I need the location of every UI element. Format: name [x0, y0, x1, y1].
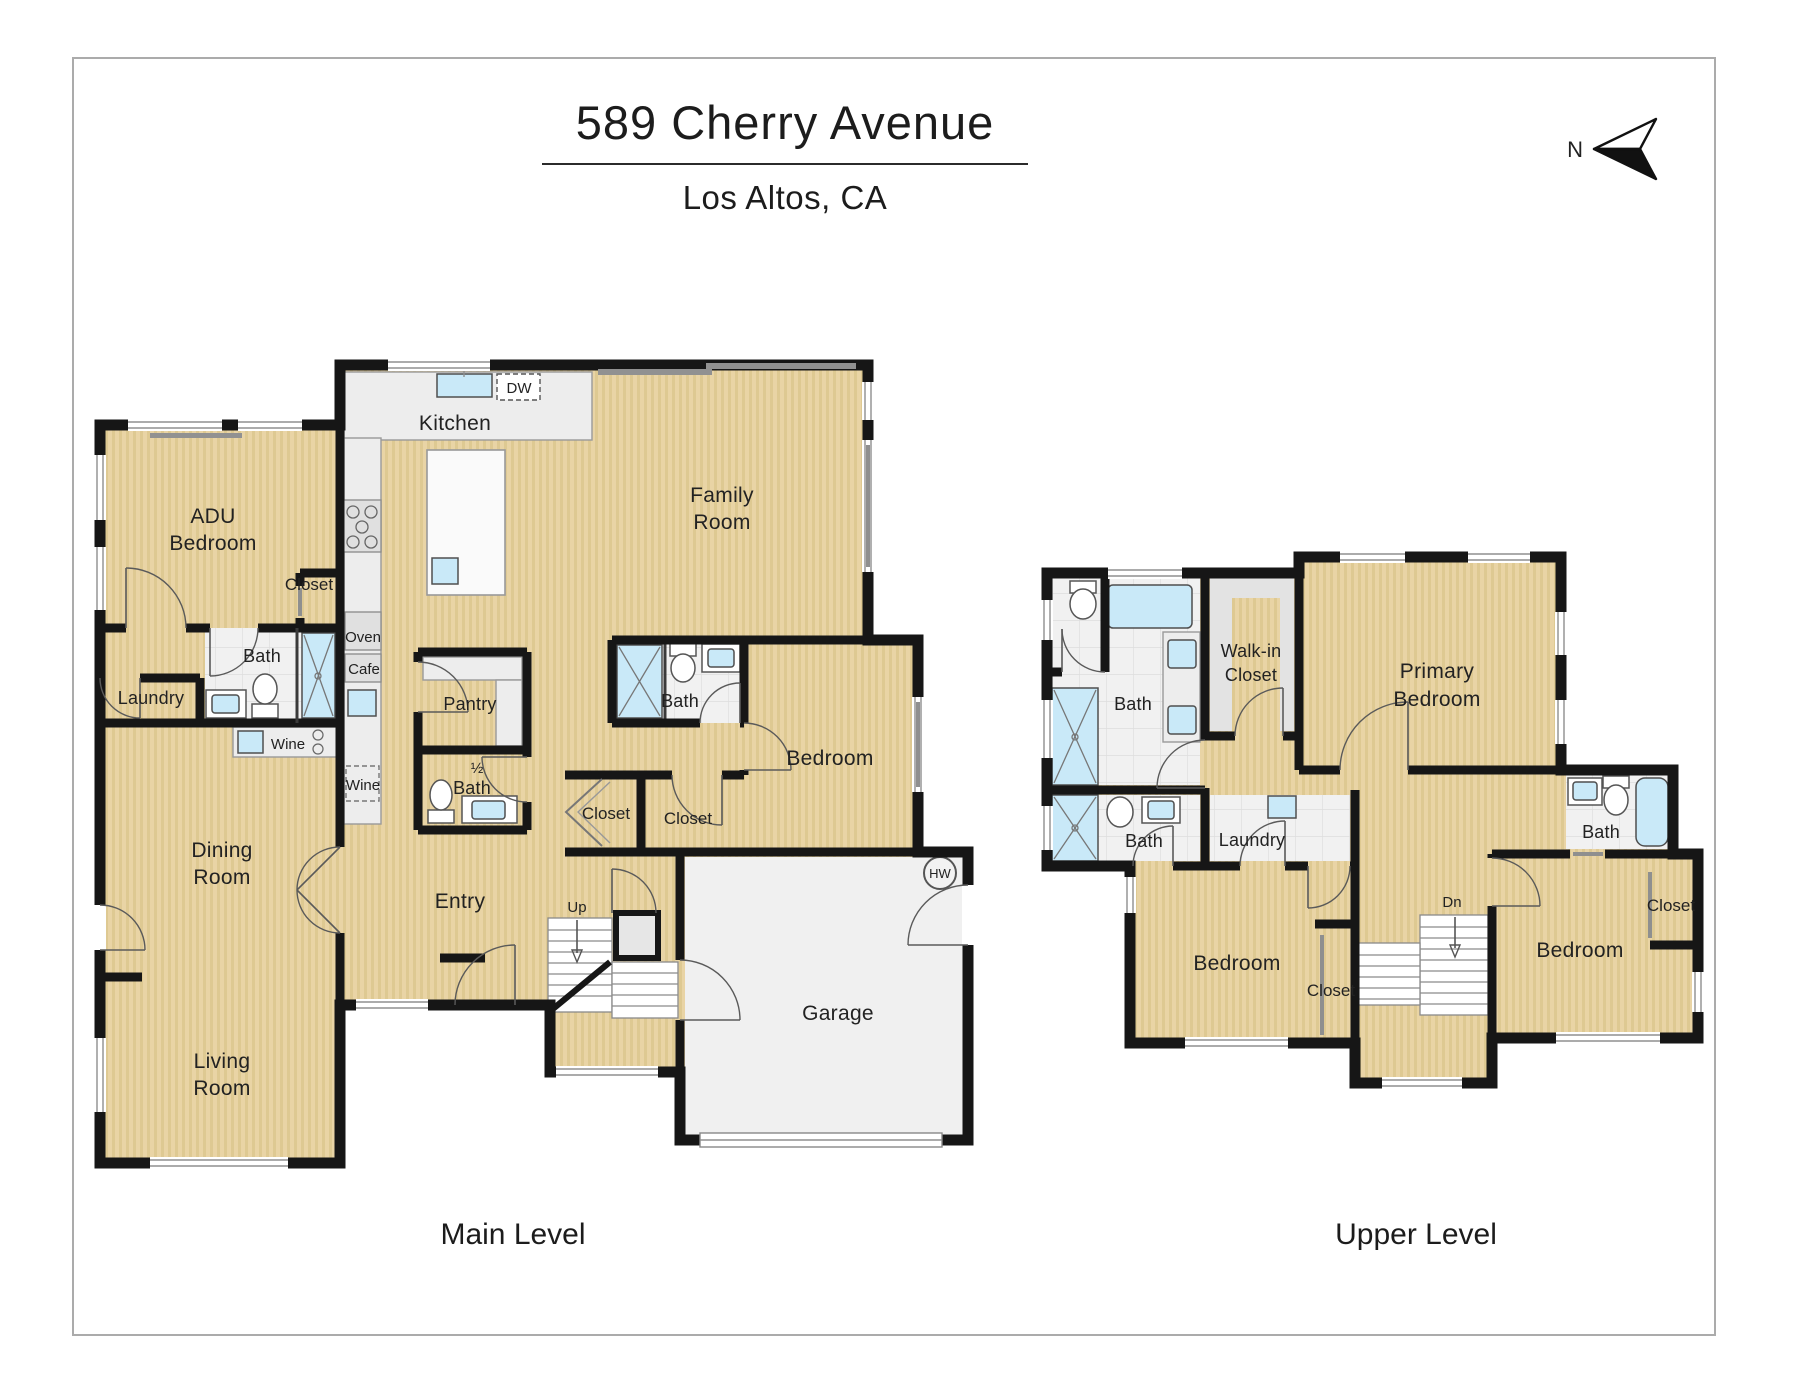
- label-half-bath-2: Bath: [453, 778, 491, 798]
- primary-sink-1: [1168, 640, 1196, 668]
- main-stairs: [548, 913, 678, 1018]
- label-kitchen: Kitchen: [419, 412, 491, 435]
- half-bath-toilet-tank: [428, 810, 454, 823]
- under-stair-closet: [616, 913, 658, 958]
- label-dn: Dn: [1442, 894, 1461, 911]
- label-walkin-1: Walk-in: [1221, 641, 1282, 661]
- north-arrow-upper-wing: [1594, 119, 1656, 149]
- label-closet-right: Closet: [1647, 896, 1695, 915]
- label-bath2: Bath: [1125, 831, 1163, 851]
- floor-plan-drawing: N: [0, 0, 1800, 1391]
- label-garage: Garage: [802, 1002, 874, 1025]
- label-pantry: Pantry: [443, 694, 496, 714]
- label-suite-bath: Bath: [661, 691, 699, 711]
- right-bath-tub: [1636, 778, 1668, 846]
- label-bedroom-left: Bedroom: [1193, 952, 1280, 975]
- label-adu-closet: Closet: [285, 575, 333, 594]
- right-bath-toilet: [1604, 785, 1628, 815]
- suite-sink: [708, 649, 734, 667]
- label-hall-closet: Closet: [582, 804, 630, 823]
- half-bath-sink: [472, 801, 505, 819]
- bath2-toilet: [1107, 797, 1133, 827]
- label-bedroom-closet: Closet: [664, 809, 712, 828]
- label-adu-1: ADU: [190, 505, 235, 528]
- label-primary-bath: Bath: [1114, 694, 1152, 714]
- pantry-counter-side: [496, 680, 522, 746]
- label-walkin-2: Closet: [1225, 665, 1277, 685]
- label-family-1: Family: [690, 484, 754, 507]
- label-bedroom-right: Bedroom: [1536, 939, 1623, 962]
- suite-toilet: [671, 654, 695, 682]
- primary-sink-2: [1168, 706, 1196, 734]
- label-dw: DW: [507, 380, 533, 397]
- north-label: N: [1567, 137, 1583, 162]
- label-laundry: Laundry: [118, 688, 184, 708]
- island-sink: [432, 558, 458, 584]
- label-adu-2: Bedroom: [169, 532, 256, 555]
- kitchen-prep-sink: [348, 690, 376, 716]
- label-half-bath-1: ½: [471, 760, 484, 777]
- pantry-counter-top: [423, 657, 522, 680]
- label-adu-wine: Wine: [271, 736, 305, 753]
- label-adu-bath: Bath: [243, 646, 281, 666]
- north-arrow-lower-wing: [1594, 149, 1656, 179]
- adu-sink: [212, 695, 239, 713]
- label-right-bath: Bath: [1582, 822, 1620, 842]
- label-closet-left: Closet: [1307, 981, 1355, 1000]
- upper-level-plan: Bath Walk-in Closet Primary Bedroom Bath…: [1041, 551, 1704, 1089]
- label-living-1: Living: [194, 1050, 251, 1073]
- label-living-2: Room: [193, 1077, 250, 1100]
- half-bath-toilet: [430, 780, 452, 810]
- laundry-sink: [1268, 796, 1296, 818]
- label-oven: Oven: [345, 629, 381, 646]
- floor-plan-page: 589 Cherry Avenue Los Altos, CA Main Lev…: [0, 0, 1800, 1391]
- adu-kitchenette-sink: [238, 731, 263, 753]
- label-primary-2: Bedroom: [1393, 688, 1480, 711]
- north-arrow: N: [1567, 119, 1656, 179]
- main-level-plan: Kitchen Family Room ADU Bedroom Closet B…: [94, 359, 974, 1169]
- label-entry: Entry: [435, 890, 486, 913]
- label-kitchen-wine: Wine: [346, 777, 380, 794]
- primary-tub: [1108, 585, 1192, 628]
- label-up: Up: [567, 899, 586, 916]
- label-dining-2: Room: [193, 866, 250, 889]
- label-primary-1: Primary: [1400, 660, 1475, 683]
- garage-floor: [685, 857, 963, 1135]
- adu-toilet-tank: [252, 704, 278, 718]
- label-family-2: Room: [693, 511, 750, 534]
- label-upper-laundry: Laundry: [1219, 830, 1285, 850]
- label-hw: HW: [929, 866, 951, 881]
- bath2-sink: [1148, 801, 1174, 819]
- kitchen-sink: [437, 374, 492, 397]
- wc-toilet: [1070, 589, 1096, 619]
- right-bath-sink: [1573, 782, 1597, 800]
- label-dining-1: Dining: [191, 839, 252, 862]
- label-cafe: Cafe: [348, 661, 380, 678]
- label-main-bedroom: Bedroom: [786, 747, 873, 770]
- adu-toilet: [253, 674, 277, 704]
